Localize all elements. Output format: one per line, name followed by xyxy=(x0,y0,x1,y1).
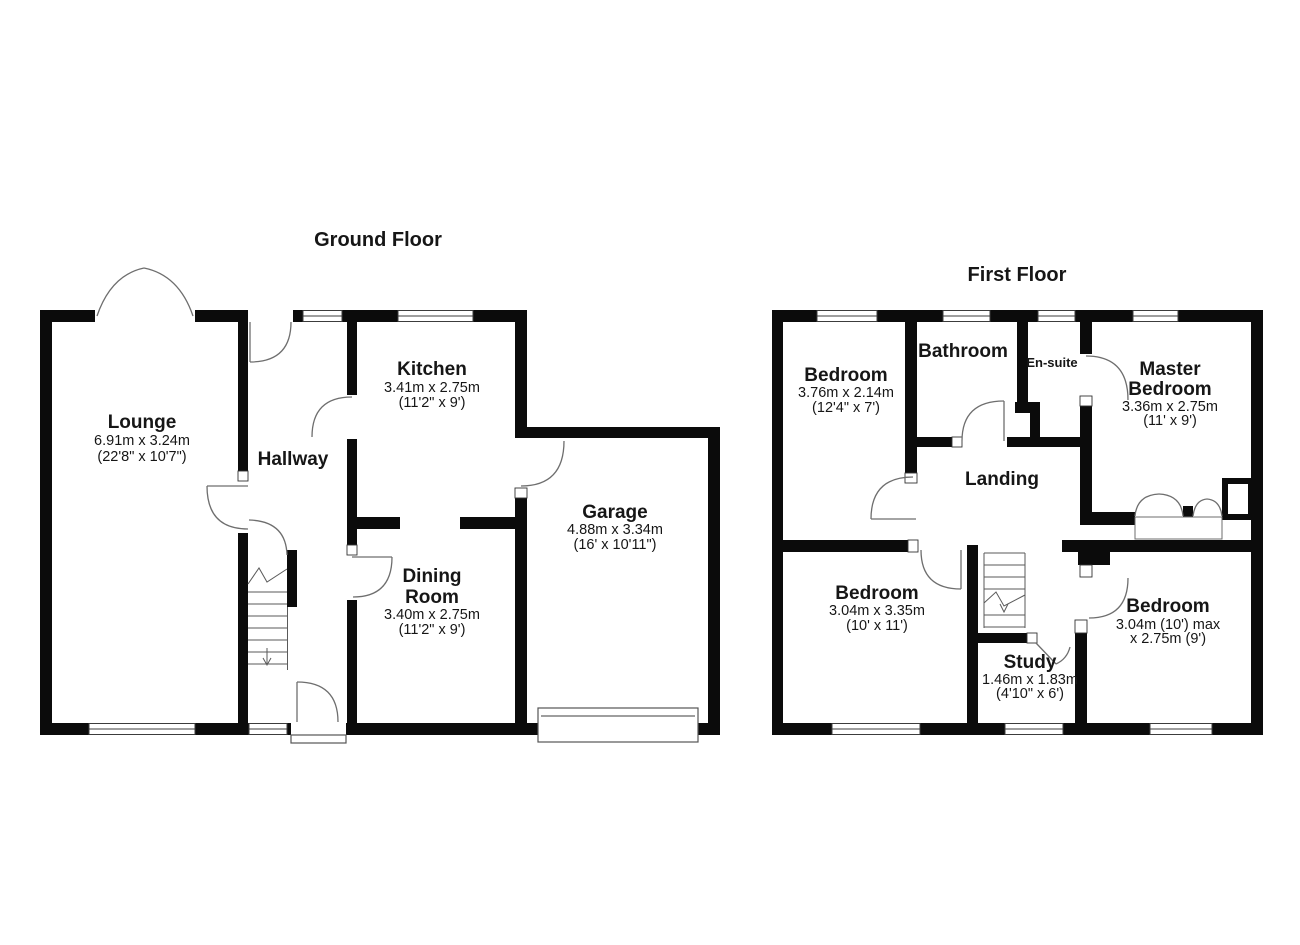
kitchen-dimensions-metric: 3.41m x 2.75m xyxy=(384,380,480,396)
garage-label: Garage xyxy=(582,502,647,523)
master-bedroom-door xyxy=(1086,356,1128,400)
wardrobe-doors xyxy=(1135,494,1222,539)
floorplan: Ground Floor Lounge 6.91m x 3.24m (22'8"… xyxy=(0,0,1300,945)
understairs-door xyxy=(249,520,287,555)
bedroom-top-left-window xyxy=(817,311,877,322)
kitchen-door xyxy=(312,397,352,437)
garage-dimensions-imperial: (16' x 10'11") xyxy=(574,537,657,553)
en-suite-label: En-suite xyxy=(1026,355,1077,370)
bathroom-door xyxy=(962,401,1004,441)
bedroom-bottom-left-label: Bedroom xyxy=(835,583,918,604)
hallway-back-window xyxy=(303,311,342,322)
master-bedroom-label-line1: Master xyxy=(1139,359,1201,380)
study-dimensions-imperial: (4'10" x 6') xyxy=(996,686,1064,702)
bedroom-bottom-left-door xyxy=(921,550,961,589)
lounge-window xyxy=(89,724,195,735)
ground-floor-door-stops xyxy=(238,471,527,555)
ground-floor-plan: Ground Floor Lounge 6.91m x 3.24m (22'8"… xyxy=(40,229,720,743)
lounge-dimensions-imperial: (22'8" x 10'7") xyxy=(97,449,186,465)
study-label: Study xyxy=(1004,652,1057,673)
garage-internal-door xyxy=(521,441,564,486)
master-bedroom-label-line2: Bedroom xyxy=(1128,379,1211,400)
ground-floor-doors xyxy=(97,268,564,722)
dining-room-dimensions-imperial: (11'2" x 9') xyxy=(399,622,466,638)
ground-floor-wall-openings xyxy=(95,310,346,735)
kitchen-dimensions-imperial: (11'2" x 9') xyxy=(399,395,466,411)
bedroom-top-left-dimensions-metric: 3.76m x 2.14m xyxy=(798,385,894,401)
bedroom-top-left-label: Bedroom xyxy=(804,365,887,386)
dining-room-label-line1: Dining xyxy=(402,566,461,587)
first-floor-door-stops xyxy=(905,396,1092,643)
dining-room-door xyxy=(352,557,392,597)
kitchen-label: Kitchen xyxy=(397,359,467,380)
first-floor-staircase xyxy=(984,553,1025,628)
back-door xyxy=(250,322,291,362)
landing-label: Landing xyxy=(965,469,1039,490)
bedroom-bottom-left-window xyxy=(832,724,920,735)
first-floor-plan: First Floor Bedroom 3.76m x 2.14m (12'4"… xyxy=(772,264,1263,735)
bedroom-bottom-right-label: Bedroom xyxy=(1126,596,1209,617)
bedroom-bottom-left-dimensions-metric: 3.04m x 3.35m xyxy=(829,603,925,619)
kitchen-window xyxy=(398,311,473,322)
french-doors xyxy=(97,268,193,316)
bedroom-bottom-right-dimensions-line2: x 2.75m (9') xyxy=(1130,631,1206,647)
lounge-door xyxy=(207,486,248,529)
lounge-dimensions-metric: 6.91m x 3.24m xyxy=(94,433,190,449)
chimney-recess xyxy=(1228,484,1248,514)
garage-door xyxy=(538,708,698,742)
first-floor-title: First Floor xyxy=(968,264,1067,286)
bathroom-window xyxy=(943,311,990,322)
ground-floor-staircase xyxy=(248,568,288,670)
master-bedroom-dimensions-imperial: (11' x 9') xyxy=(1143,413,1197,429)
study-window xyxy=(1005,724,1063,735)
bedroom-bottom-right-window xyxy=(1150,724,1212,735)
bedroom-top-left-dimensions-imperial: (12'4" x 7') xyxy=(812,400,880,416)
hallway-label: Hallway xyxy=(258,449,329,470)
bedroom-bottom-left-dimensions-imperial: (10' x 11') xyxy=(846,618,908,634)
lounge-label: Lounge xyxy=(108,412,177,433)
ground-floor-title: Ground Floor xyxy=(314,229,442,251)
front-door xyxy=(297,682,338,722)
master-bedroom-window xyxy=(1133,311,1178,322)
front-door-step xyxy=(291,735,346,743)
en-suite-window xyxy=(1038,311,1075,322)
bedroom-bottom-right-door xyxy=(1089,578,1128,618)
bathroom-label: Bathroom xyxy=(918,341,1008,362)
garage-dimensions-metric: 4.88m x 3.34m xyxy=(567,522,663,538)
hallway-front-window xyxy=(249,724,287,735)
dining-room-dimensions-metric: 3.40m x 2.75m xyxy=(384,607,480,623)
dining-room-label-line2: Room xyxy=(405,587,459,608)
